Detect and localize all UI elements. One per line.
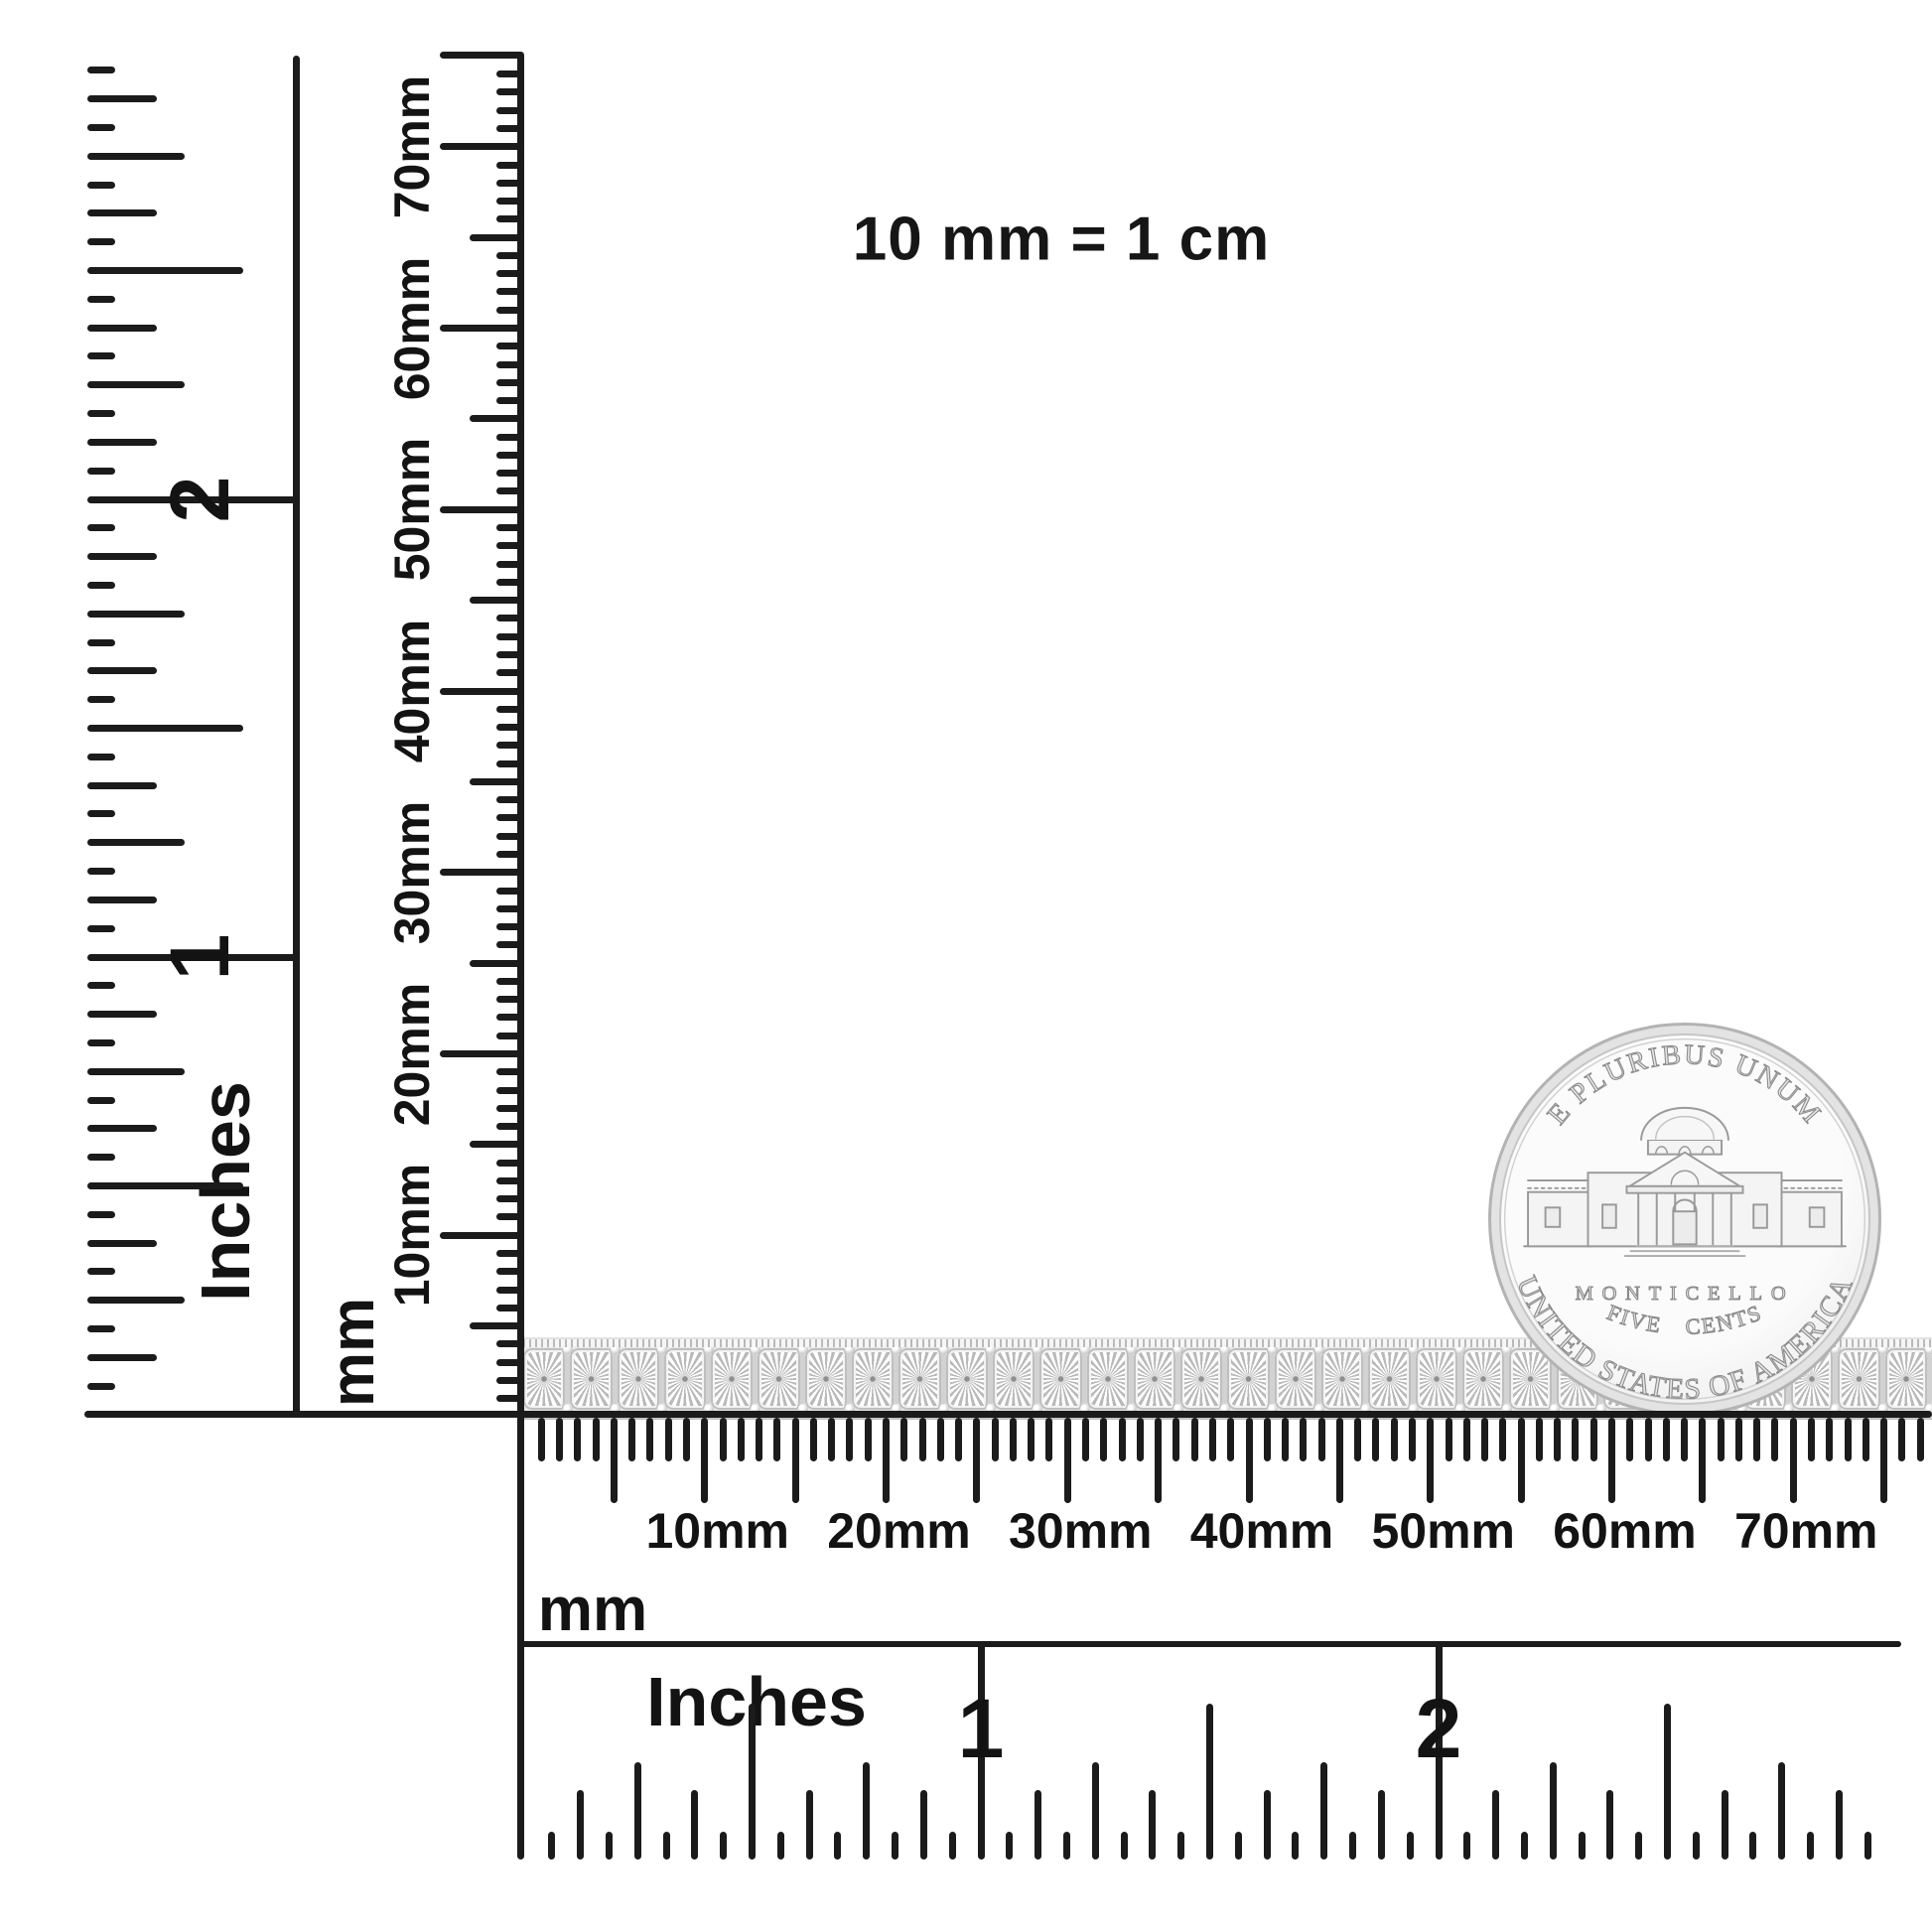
vertical-inch-tick xyxy=(87,1268,115,1275)
horizontal-inch-tick xyxy=(863,1762,870,1860)
horizontal-mm-tick xyxy=(1137,1418,1144,1461)
horizontal-inch-tick xyxy=(1664,1704,1671,1860)
vertical-mm-tick xyxy=(496,1213,524,1220)
vertical-mm-tick xyxy=(496,978,524,985)
horizontal-mm-tick xyxy=(1481,1418,1488,1461)
horizontal-mm-tick xyxy=(1771,1418,1778,1461)
horizontal-inch-tick xyxy=(1264,1790,1271,1860)
vertical-inch-numeral-1: 1 xyxy=(158,934,241,981)
vertical-mm-tick xyxy=(496,307,524,314)
vertical-mm-tick xyxy=(496,1340,524,1347)
horizontal-inch-tick xyxy=(1722,1790,1728,1860)
horizontal-inch-tick xyxy=(1521,1832,1528,1860)
horizontal-mm-tick xyxy=(1391,1418,1398,1461)
horizontal-mm-tick xyxy=(992,1418,999,1461)
bracelet-link xyxy=(758,1348,804,1410)
bracelet-link xyxy=(1087,1348,1134,1410)
vertical-mm-tick xyxy=(496,724,524,731)
coin-building-label: MONTICELLO xyxy=(1576,1283,1795,1305)
horizontal-inch-tick xyxy=(1349,1832,1356,1860)
horizontal-inch-tick xyxy=(1177,1832,1184,1860)
vertical-mm-tick xyxy=(496,996,524,1003)
vertical-mm-tick xyxy=(496,524,524,531)
horizontal-mm-tick xyxy=(556,1418,563,1461)
bracelet-link xyxy=(946,1348,993,1410)
vertical-inch-tick xyxy=(87,897,157,903)
bracelet-link xyxy=(1321,1348,1368,1410)
vertical-mm-tick xyxy=(496,814,524,821)
horizontal-mm-tick xyxy=(1554,1418,1561,1461)
horizontal-mm-tick xyxy=(665,1418,672,1461)
horizontal-inch-tick xyxy=(1436,1641,1443,1860)
vertical-mm-tick xyxy=(496,1105,524,1112)
horizontal-mm-tick xyxy=(1318,1418,1325,1461)
bracelet-link xyxy=(1885,1348,1932,1410)
vertical-inch-tick xyxy=(87,296,115,303)
vertical-mm-tick xyxy=(496,833,524,840)
horizontal-mm-tick xyxy=(738,1418,745,1461)
vertical-mm-tick xyxy=(496,162,524,169)
vertical-mm-tick xyxy=(496,379,524,386)
vertical-mm-tick xyxy=(496,923,524,930)
bracelet-link xyxy=(664,1348,711,1410)
horizontal-mm-tick xyxy=(1354,1418,1361,1461)
horizontal-inch-tick xyxy=(1292,1832,1299,1860)
horizontal-mm-tick xyxy=(1064,1418,1071,1503)
ruler-layer: Inches mm mm Inches 1210mm20mm30mm40mm50… xyxy=(0,0,1932,1932)
vertical-mm-tick xyxy=(496,1305,524,1311)
vertical-mm-tick xyxy=(496,1359,524,1366)
vertical-inch-tick xyxy=(87,1354,157,1361)
horizontal-inch-ruler-top-edge xyxy=(521,1641,1901,1647)
vertical-mm-tick xyxy=(470,960,524,967)
vertical-inch-tick xyxy=(87,352,115,359)
horizontal-mm-tick xyxy=(1845,1418,1852,1461)
vertical-inch-tick xyxy=(87,267,243,274)
vertical-inch-tick xyxy=(87,468,115,475)
bracelet-link xyxy=(523,1348,570,1410)
vertical-mm-tick xyxy=(496,487,524,494)
vertical-inch-tick xyxy=(87,868,115,875)
vertical-inch-tick xyxy=(87,754,115,760)
vertical-mm-tick xyxy=(496,905,524,912)
vertical-mm-tick xyxy=(496,198,524,205)
horizontal-mm-tick xyxy=(1119,1418,1126,1461)
vertical-inch-tick xyxy=(87,238,115,245)
horizontal-mm-tick xyxy=(1045,1418,1052,1461)
vertical-mm-tick xyxy=(496,1123,524,1130)
vertical-mm-tick xyxy=(496,742,524,749)
horizontal-mm-tick xyxy=(574,1418,581,1461)
horizontal-inch-tick xyxy=(1463,1832,1470,1860)
horizontal-inch-tick xyxy=(1550,1762,1557,1860)
vertical-mm-tick xyxy=(496,1195,524,1202)
horizontal-mm-tick xyxy=(1518,1418,1525,1503)
horizontal-mm-label-60mm: 60mm xyxy=(1553,1506,1697,1556)
horizontal-inch-tick xyxy=(892,1832,898,1860)
vertical-inch-tick xyxy=(87,782,157,789)
horizontal-inch-tick xyxy=(806,1790,813,1860)
vertical-inch-ruler-unit-label: Inches xyxy=(187,1071,264,1311)
horizontal-mm-tick xyxy=(1173,1418,1179,1461)
vertical-mm-tick xyxy=(496,452,524,459)
bracelet-link xyxy=(1039,1348,1086,1410)
vertical-mm-tick xyxy=(440,1050,524,1057)
vertical-mm-ruler-unit-label: mm xyxy=(323,1298,384,1407)
horizontal-mm-tick xyxy=(1699,1418,1706,1503)
nickel-coin: E PLURIBUS UNUM MONTICELLO FIVE CENTS UN… xyxy=(1488,1023,1881,1416)
horizontal-inch-tick xyxy=(1778,1762,1785,1860)
nickel-coin-face: E PLURIBUS UNUM MONTICELLO FIVE CENTS UN… xyxy=(1491,1026,1878,1413)
vertical-inch-tick xyxy=(87,982,115,989)
horizontal-inch-tick xyxy=(663,1832,670,1860)
vertical-mm-tick xyxy=(496,1250,524,1257)
horizontal-mm-tick xyxy=(1863,1418,1869,1461)
vertical-mm-tick xyxy=(496,70,524,77)
horizontal-inch-tick xyxy=(1635,1832,1642,1860)
horizontal-mm-tick xyxy=(1155,1418,1162,1503)
vertical-inch-tick xyxy=(87,410,115,417)
horizontal-mm-tick xyxy=(1898,1418,1905,1461)
horizontal-mm-label-30mm: 30mm xyxy=(1009,1506,1153,1556)
vertical-mm-tick xyxy=(440,325,524,332)
monticello-building-icon xyxy=(1524,1108,1846,1256)
bracelet-link xyxy=(1275,1348,1321,1410)
horizontal-mm-tick xyxy=(1917,1418,1924,1461)
horizontal-inch-tick xyxy=(777,1832,784,1860)
bracelet-link xyxy=(618,1348,664,1410)
horizontal-inch-tick xyxy=(1378,1790,1385,1860)
vertical-inch-tick xyxy=(87,696,115,703)
horizontal-inch-tick xyxy=(1693,1832,1700,1860)
vertical-inch-tick xyxy=(87,925,115,932)
bracelet-link xyxy=(1416,1348,1462,1410)
vertical-inch-tick xyxy=(87,1240,157,1247)
vertical-mm-tick xyxy=(496,941,524,948)
vertical-mm-label-10mm: 10mm xyxy=(387,1164,437,1308)
horizontal-mm-tick xyxy=(1100,1418,1107,1461)
bracelet-link xyxy=(993,1348,1039,1410)
horizontal-inch-tick xyxy=(949,1832,956,1860)
horizontal-inch-tick xyxy=(606,1832,613,1860)
horizontal-inch-tick xyxy=(1006,1832,1013,1860)
vertical-mm-tick xyxy=(470,1322,524,1329)
vertical-mm-label-40mm: 40mm xyxy=(387,620,437,763)
vertical-mm-tick xyxy=(496,561,524,568)
bracelet-link xyxy=(852,1348,898,1410)
horizontal-mm-tick xyxy=(865,1418,872,1461)
vertical-mm-tick xyxy=(496,180,524,187)
vertical-inch-tick xyxy=(87,153,185,160)
vertical-inch-tick xyxy=(87,553,157,560)
horizontal-inch-tick xyxy=(1749,1832,1756,1860)
vertical-inch-tick xyxy=(87,439,157,446)
horizontal-mm-tick xyxy=(1826,1418,1833,1461)
vertical-mm-tick xyxy=(440,143,524,150)
vertical-inch-tick xyxy=(87,209,157,216)
horizontal-mm-tick xyxy=(1626,1418,1633,1461)
horizontal-inch-tick xyxy=(691,1790,698,1860)
horizontal-inch-tick xyxy=(1035,1790,1041,1860)
horizontal-mm-tick xyxy=(1663,1418,1670,1461)
horizontal-mm-tick xyxy=(1590,1418,1597,1461)
vertical-inch-tick xyxy=(87,1068,185,1075)
horizontal-mm-tick xyxy=(919,1418,926,1461)
vertical-mm-label-20mm: 20mm xyxy=(387,982,437,1126)
horizontal-mm-tick xyxy=(646,1418,653,1461)
horizontal-inch-ruler-unit-label: Inches xyxy=(632,1663,881,1740)
vertical-mm-tick xyxy=(496,252,524,259)
vertical-mm-tick xyxy=(496,434,524,441)
horizontal-inch-tick xyxy=(749,1704,756,1860)
horizontal-inch-tick xyxy=(1407,1832,1414,1860)
horizontal-inch-tick xyxy=(1320,1762,1327,1860)
horizontal-mm-tick xyxy=(628,1418,635,1461)
vertical-inch-tick xyxy=(87,67,115,73)
horizontal-mm-tick xyxy=(1463,1418,1470,1461)
bracelet-link xyxy=(898,1348,945,1410)
vertical-mm-tick xyxy=(496,542,524,549)
vertical-mm-tick xyxy=(440,1232,524,1239)
vertical-mm-tick xyxy=(496,470,524,477)
vertical-inch-tick xyxy=(87,1125,157,1132)
vertical-mm-tick xyxy=(470,597,524,604)
vertical-mm-label-60mm: 60mm xyxy=(387,256,437,400)
vertical-inch-tick xyxy=(87,1182,243,1189)
vertical-inch-tick xyxy=(87,496,297,503)
horizontal-mm-tick xyxy=(1082,1418,1089,1461)
vertical-inch-tick xyxy=(87,954,297,961)
vertical-mm-tick xyxy=(496,397,524,404)
horizontal-mm-tick xyxy=(1808,1418,1815,1461)
horizontal-mm-tick xyxy=(1790,1418,1797,1503)
vertical-inch-tick xyxy=(87,1097,115,1104)
vertical-mm-tick xyxy=(496,796,524,803)
vertical-inch-tick xyxy=(87,582,115,589)
horizontal-inch-tick xyxy=(920,1790,927,1860)
horizontal-mm-tick xyxy=(1427,1418,1434,1503)
vertical-mm-tick xyxy=(470,1141,524,1148)
vertical-mm-tick xyxy=(496,579,524,586)
horizontal-mm-tick xyxy=(1572,1418,1579,1461)
horizontal-mm-tick xyxy=(1718,1418,1725,1461)
vertical-inch-numeral-2: 2 xyxy=(158,477,241,523)
horizontal-mm-tick xyxy=(973,1418,980,1503)
vertical-mm-ruler-top-cap xyxy=(440,52,524,59)
horizontal-mm-tick xyxy=(1536,1418,1543,1461)
horizontal-mm-tick xyxy=(1681,1418,1688,1461)
vertical-mm-tick xyxy=(496,1033,524,1039)
horizontal-inch-tick xyxy=(548,1832,555,1860)
horizontal-mm-tick xyxy=(1753,1418,1760,1461)
vertical-mm-tick xyxy=(496,343,524,349)
horizontal-mm-ruler-unit-label: mm xyxy=(538,1580,647,1641)
horizontal-inch-tick xyxy=(1807,1832,1814,1860)
horizontal-inch-tick xyxy=(834,1832,841,1860)
vertical-mm-tick xyxy=(496,125,524,132)
horizontal-inch-tick xyxy=(1092,1762,1099,1860)
vertical-inch-tick xyxy=(87,1011,157,1018)
vertical-mm-tick xyxy=(496,760,524,767)
vertical-mm-tick xyxy=(496,215,524,222)
horizontal-mm-tick xyxy=(810,1418,817,1461)
horizontal-mm-tick xyxy=(955,1418,962,1461)
vertical-mm-tick xyxy=(440,869,524,876)
horizontal-inch-numeral-2: 2 xyxy=(1416,1687,1462,1770)
vertical-mm-tick xyxy=(496,851,524,858)
vertical-mm-tick xyxy=(496,633,524,640)
bracelet-link xyxy=(805,1348,852,1410)
bracelet-link xyxy=(1368,1348,1415,1410)
horizontal-mm-tick xyxy=(1735,1418,1742,1461)
vertical-mm-label-50mm: 50mm xyxy=(387,438,437,582)
vertical-inch-tick xyxy=(87,839,185,846)
bracelet-link xyxy=(1227,1348,1274,1410)
horizontal-mm-tick xyxy=(1300,1418,1307,1461)
bracelet-link xyxy=(711,1348,758,1410)
horizontal-mm-label-70mm: 70mm xyxy=(1734,1506,1878,1556)
vertical-mm-tick xyxy=(496,288,524,295)
vertical-mm-label-70mm: 70mm xyxy=(387,74,437,218)
horizontal-mm-label-50mm: 50mm xyxy=(1371,1506,1515,1556)
vertical-inch-tick xyxy=(87,124,115,131)
horizontal-mm-tick xyxy=(937,1418,944,1461)
bracelet-link xyxy=(1180,1348,1227,1410)
vertical-inch-ruler-edge xyxy=(293,56,300,1415)
vertical-inch-tick xyxy=(87,1383,115,1390)
horizontal-mm-tick xyxy=(756,1418,762,1461)
vertical-mm-tick xyxy=(496,1287,524,1294)
horizontal-mm-tick xyxy=(1282,1418,1289,1461)
horizontal-mm-tick xyxy=(1608,1418,1615,1503)
vertical-inch-tick xyxy=(87,725,243,732)
vertical-inch-tick xyxy=(87,611,185,618)
coin-denomination: FIVE CENTS xyxy=(1604,1300,1766,1339)
horizontal-mm-tick xyxy=(1409,1418,1416,1461)
horizontal-mm-tick xyxy=(1028,1418,1035,1461)
horizontal-inch-tick xyxy=(1063,1832,1070,1860)
bracelet-link xyxy=(1134,1348,1180,1410)
vertical-mm-tick xyxy=(496,888,524,895)
horizontal-inch-tick xyxy=(720,1832,727,1860)
horizontal-mm-tick xyxy=(1209,1418,1216,1461)
vertical-inch-tick xyxy=(87,1325,115,1332)
horizontal-mm-tick xyxy=(538,1418,545,1461)
vertical-inch-tick xyxy=(87,95,157,102)
horizontal-mm-label-10mm: 10mm xyxy=(645,1506,789,1556)
vertical-mm-tick xyxy=(496,88,524,95)
horizontal-inch-tick xyxy=(1579,1832,1586,1860)
vertical-mm-tick xyxy=(496,1177,524,1184)
horizontal-mm-tick xyxy=(720,1418,727,1461)
vertical-inch-tick xyxy=(87,524,115,531)
vertical-inch-tick xyxy=(87,1211,115,1218)
horizontal-mm-tick xyxy=(846,1418,853,1461)
horizontal-mm-tick xyxy=(828,1418,835,1461)
horizontal-mm-tick xyxy=(1010,1418,1017,1461)
vertical-mm-tick xyxy=(496,706,524,713)
horizontal-inch-tick xyxy=(1235,1832,1242,1860)
vertical-mm-tick xyxy=(496,1068,524,1075)
vertical-mm-tick xyxy=(496,1087,524,1094)
horizontal-inch-tick xyxy=(634,1762,641,1860)
vertical-inch-tick xyxy=(87,667,157,674)
vertical-mm-ruler-edge xyxy=(517,54,524,1860)
horizontal-mm-tick xyxy=(1880,1418,1887,1503)
horizontal-mm-tick xyxy=(701,1418,708,1503)
horizontal-mm-label-40mm: 40mm xyxy=(1190,1506,1334,1556)
horizontal-inch-tick xyxy=(1121,1832,1128,1860)
horizontal-mm-tick xyxy=(1446,1418,1452,1461)
horizontal-inch-tick xyxy=(1149,1790,1156,1860)
horizontal-mm-tick xyxy=(883,1418,890,1503)
horizontal-mm-tick xyxy=(1191,1418,1198,1461)
horizontal-mm-tick xyxy=(1264,1418,1271,1461)
vertical-mm-label-30mm: 30mm xyxy=(387,800,437,944)
measurement-scene: 10 mm = 1 cm xyxy=(0,0,1932,1932)
horizontal-inch-numeral-1: 1 xyxy=(958,1687,1005,1770)
horizontal-mm-tick xyxy=(1645,1418,1652,1461)
vertical-mm-tick xyxy=(496,1395,524,1402)
horizontal-mm-tick xyxy=(773,1418,780,1461)
horizontal-mm-tick xyxy=(611,1418,618,1503)
vertical-inch-tick xyxy=(87,1154,115,1161)
vertical-mm-tick xyxy=(496,1377,524,1384)
vertical-mm-tick xyxy=(496,270,524,277)
vertical-inch-tick xyxy=(87,810,115,817)
vertical-mm-tick xyxy=(470,234,524,241)
horizontal-inch-tick xyxy=(1206,1704,1213,1860)
horizontal-mm-tick xyxy=(792,1418,799,1503)
horizontal-inch-tick xyxy=(577,1790,584,1860)
vertical-mm-tick xyxy=(496,1014,524,1021)
horizontal-mm-tick xyxy=(1246,1418,1253,1503)
horizontal-mm-tick xyxy=(593,1418,600,1461)
vertical-inch-tick xyxy=(87,1039,115,1046)
vertical-mm-tick xyxy=(496,651,524,658)
horizontal-inch-tick xyxy=(1492,1790,1499,1860)
vertical-mm-tick xyxy=(470,778,524,785)
vertical-mm-tick xyxy=(440,506,524,513)
vertical-mm-tick xyxy=(496,615,524,621)
vertical-mm-tick xyxy=(496,361,524,368)
vertical-mm-tick xyxy=(496,1160,524,1167)
vertical-inch-tick xyxy=(87,182,115,189)
vertical-mm-tick xyxy=(470,415,524,422)
horizontal-mm-tick xyxy=(1336,1418,1343,1503)
horizontal-inch-tick xyxy=(1606,1790,1613,1860)
horizontal-inch-tick xyxy=(1836,1790,1843,1860)
vertical-mm-tick xyxy=(440,688,524,695)
vertical-inch-tick xyxy=(87,639,115,646)
vertical-inch-tick xyxy=(87,1297,185,1304)
vertical-mm-tick xyxy=(496,669,524,676)
horizontal-mm-label-20mm: 20mm xyxy=(827,1506,971,1556)
bracelet-link xyxy=(570,1348,617,1410)
vertical-mm-tick xyxy=(496,1268,524,1275)
horizontal-mm-tick xyxy=(683,1418,690,1461)
scale-note: 10 mm = 1 cm xyxy=(853,205,1270,275)
vertical-inch-tick xyxy=(87,325,157,332)
vertical-inch-tick xyxy=(87,381,185,388)
horizontal-mm-tick xyxy=(900,1418,907,1461)
horizontal-mm-tick xyxy=(1499,1418,1506,1461)
horizontal-mm-tick xyxy=(1227,1418,1234,1461)
horizontal-mm-tick xyxy=(1372,1418,1379,1461)
horizontal-inch-tick xyxy=(978,1641,985,1860)
vertical-mm-tick xyxy=(496,107,524,114)
horizontal-inch-tick xyxy=(1864,1832,1871,1860)
